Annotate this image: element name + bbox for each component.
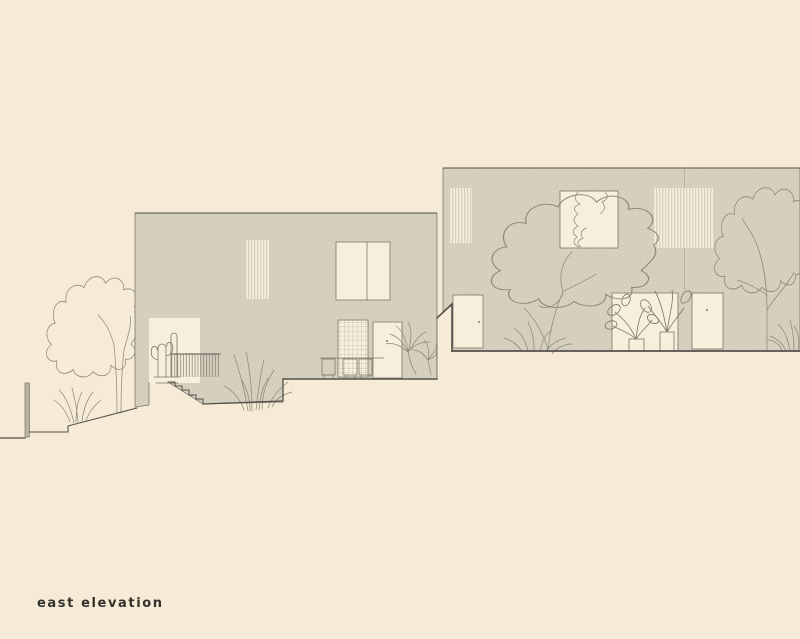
entry-door <box>373 322 402 378</box>
elevation-canvas <box>0 0 800 639</box>
drawing-title: east elevation <box>37 596 164 611</box>
level-change-wall <box>437 304 452 351</box>
door-right <box>692 293 723 349</box>
deciduous-tree-canopy <box>46 277 140 377</box>
gridded-window <box>338 320 368 377</box>
elevation-drawing <box>0 0 800 639</box>
door-right-handle <box>706 309 708 311</box>
louver-window-right <box>654 188 714 248</box>
retaining-post <box>25 383 30 437</box>
left-building <box>135 213 437 411</box>
garden-shrub <box>54 388 101 423</box>
louver-window-left <box>450 188 472 243</box>
double-casement-window <box>336 242 390 300</box>
square-window <box>560 191 618 248</box>
stair-railing <box>171 354 220 377</box>
door-left-handle <box>478 321 480 323</box>
door-handle <box>386 340 388 342</box>
right-building <box>443 168 800 354</box>
louver-window <box>246 240 270 299</box>
site-left-garden <box>46 277 140 423</box>
